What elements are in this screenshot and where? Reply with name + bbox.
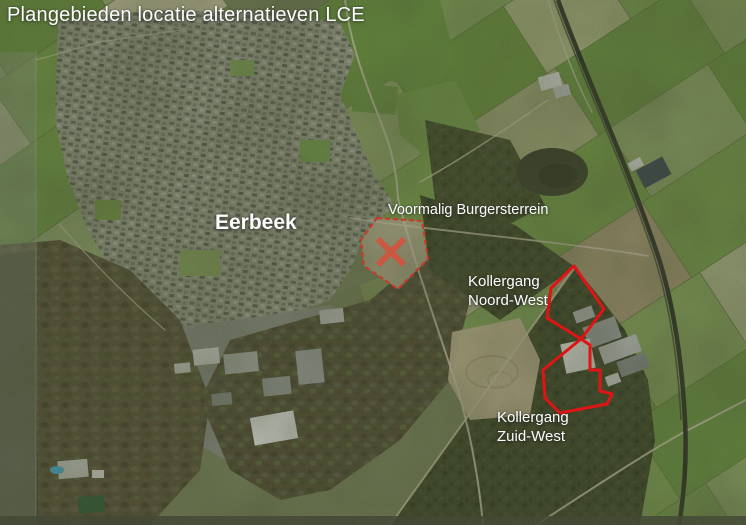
label-voormalig-burgersterrein: Voormalig Burgersterrein [388,202,548,220]
photo-grain [0,0,746,525]
label-kollergang-noord-west-line2: Noord-West [468,291,548,310]
map-canvas: Plangebieden locatie alternatieven LCE E… [0,0,746,525]
label-kollergang-noord-west-line1: Kollergang [468,272,548,291]
page-title: Plangebieden locatie alternatieven LCE [7,3,365,27]
label-kollergang-zuid-west-line2: Zuid-West [497,427,569,446]
label-kollergang-noord-west: Kollergang Noord-West [468,272,548,310]
label-kollergang-zuid-west: Kollergang Zuid-West [497,408,569,446]
aerial-photo [0,0,746,525]
label-kollergang-zuid-west-line1: Kollergang [497,408,569,427]
label-eerbeek: Eerbeek [215,210,297,236]
